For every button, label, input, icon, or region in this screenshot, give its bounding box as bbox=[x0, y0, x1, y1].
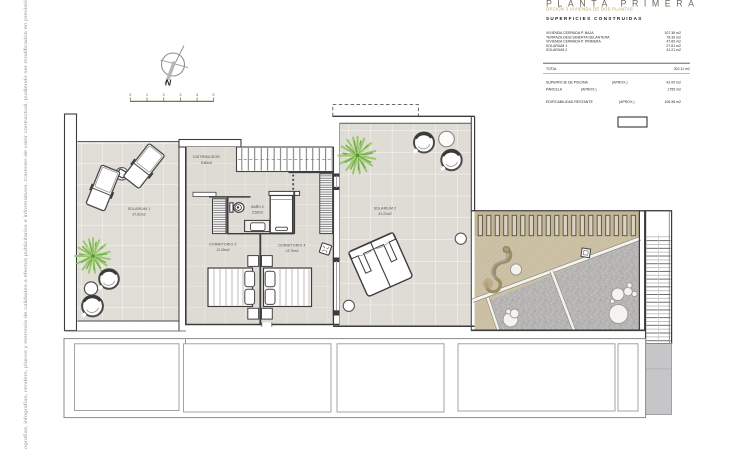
svg-text:N: N bbox=[165, 78, 172, 88]
svg-text:1755 m2: 1755 m2 bbox=[667, 87, 681, 91]
svg-text:106.96 m2: 106.96 m2 bbox=[664, 100, 681, 104]
svg-text:DISTRIBUIDOR: DISTRIBUIDOR bbox=[193, 155, 220, 159]
svg-text:BAÑO 2: BAÑO 2 bbox=[251, 204, 264, 209]
svg-text:OPCIÓN 3 VIVIENDA DE DOS PLANT: OPCIÓN 3 VIVIENDA DE DOS PLANTAS bbox=[546, 7, 633, 12]
svg-text:41.21 m2: 41.21 m2 bbox=[666, 48, 681, 52]
svg-text:3.52m2: 3.52m2 bbox=[252, 211, 263, 215]
svg-text:27.61m2: 27.61m2 bbox=[132, 213, 145, 217]
svg-text:SOLARIUM 2: SOLARIUM 2 bbox=[374, 207, 397, 211]
svg-text:12.26m2: 12.26m2 bbox=[216, 248, 229, 252]
svg-text:ografías, infografías, renders: ografías, infografías, renders, planos y… bbox=[23, 0, 28, 449]
svg-text:(APROX.): (APROX.) bbox=[619, 100, 635, 104]
svg-text:DORMITORIO 4: DORMITORIO 4 bbox=[278, 244, 305, 248]
svg-text:42.00 m2: 42.00 m2 bbox=[666, 80, 681, 84]
svg-text:SOLARIUM 2: SOLARIUM 2 bbox=[546, 48, 567, 52]
svg-text:(APROX.): (APROX.) bbox=[581, 87, 597, 91]
svg-text:SUPERFICIES CONSTRUIDAS: SUPERFICIES CONSTRUIDAS bbox=[546, 16, 643, 21]
svg-text:DORMITORIO 3: DORMITORIO 3 bbox=[209, 243, 236, 247]
svg-text:5.80m2: 5.80m2 bbox=[201, 161, 212, 165]
svg-text:TOTAL: TOTAL bbox=[546, 67, 557, 71]
svg-text:13.76m2: 13.76m2 bbox=[285, 249, 298, 253]
svg-text:(APROX.): (APROX.) bbox=[612, 80, 628, 84]
svg-text:SUPERFICIE DE PISCINA: SUPERFICIE DE PISCINA bbox=[546, 80, 588, 84]
svg-text:41.21m2: 41.21m2 bbox=[378, 212, 391, 216]
svg-text:PARCELA: PARCELA bbox=[546, 87, 563, 91]
svg-text:302.11 m2: 302.11 m2 bbox=[674, 67, 690, 71]
svg-text:EDIFICABILIDAD RESTANTE: EDIFICABILIDAD RESTANTE bbox=[546, 100, 593, 104]
svg-text:SOLARIUM 1: SOLARIUM 1 bbox=[128, 207, 151, 211]
